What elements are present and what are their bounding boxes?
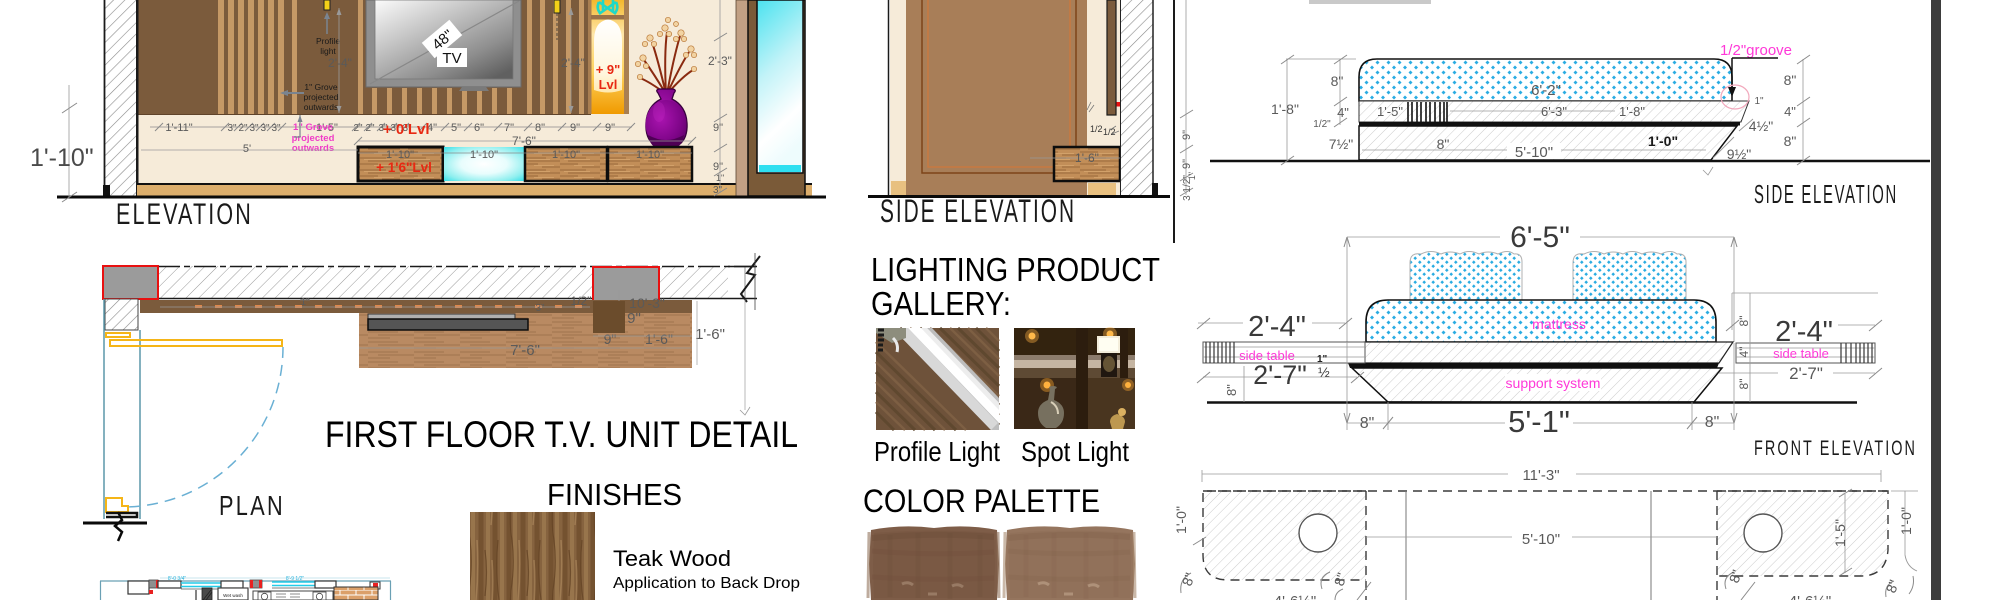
svg-text:6'-2": 6'-2" xyxy=(1531,82,1561,99)
svg-text:7½": 7½" xyxy=(1329,136,1353,152)
svg-text:Teak Wood: Teak Wood xyxy=(613,546,731,571)
svg-text:9": 9" xyxy=(713,161,723,173)
svg-text:9½": 9½" xyxy=(1727,146,1751,162)
svg-text:GALLERY:: GALLERY: xyxy=(871,285,1011,322)
svg-text:1": 1" xyxy=(716,173,724,183)
svg-text:4": 4" xyxy=(1784,104,1796,119)
svg-text:2": 2" xyxy=(365,123,375,134)
svg-text:2'-4": 2'-4" xyxy=(561,56,585,70)
svg-text:1/2: 1/2 xyxy=(1103,127,1116,137)
svg-text:3 1/2": 3 1/2" xyxy=(1182,175,1193,201)
svg-text:4": 4" xyxy=(1737,347,1751,358)
svg-text:SIDE ELEVATION: SIDE ELEVATION xyxy=(880,193,1076,229)
svg-text:2'-4": 2'-4" xyxy=(328,56,352,70)
svg-text:TV: TV xyxy=(442,50,461,67)
svg-text:side table: side table xyxy=(1773,346,1829,361)
svg-text:PLAN: PLAN xyxy=(219,490,285,521)
svg-text:1" Grove: 1" Grove xyxy=(293,122,333,133)
svg-text:1/2": 1/2" xyxy=(571,294,592,308)
svg-text:1'-5": 1'-5" xyxy=(1832,519,1848,547)
svg-text:3": 3" xyxy=(260,123,270,134)
svg-text:7": 7" xyxy=(504,122,514,134)
svg-text:10'-3": 10'-3" xyxy=(629,295,665,311)
svg-text:+ 1'6"Lvl: + 1'6"Lvl xyxy=(376,160,432,175)
svg-text:projected: projected xyxy=(304,92,339,102)
svg-text:8": 8" xyxy=(1224,384,1239,396)
svg-text:Profile Light: Profile Light xyxy=(874,436,1000,467)
svg-text:5'-10": 5'-10" xyxy=(1522,531,1560,548)
svg-text:LIGHTING PRODUCT: LIGHTING PRODUCT xyxy=(871,251,1160,288)
svg-text:1'-8": 1'-8" xyxy=(1619,104,1645,119)
svg-text:1/2": 1/2" xyxy=(1313,119,1331,130)
svg-text:1/2"groove: 1/2"groove xyxy=(1720,42,1792,59)
svg-text:6'-3": 6'-3" xyxy=(1541,104,1567,119)
svg-text:FIRST FLOOR T.V. UNIT DETAIL: FIRST FLOOR T.V. UNIT DETAIL xyxy=(325,414,798,455)
svg-text:2": 2" xyxy=(353,123,363,134)
svg-text:2": 2" xyxy=(238,123,248,134)
svg-text:ELEVATION: ELEVATION xyxy=(116,198,253,231)
svg-text:9": 9" xyxy=(605,122,615,134)
svg-text:9": 9" xyxy=(1181,159,1193,169)
svg-text:4": 4" xyxy=(1337,105,1349,120)
svg-text:1'-5": 1'-5" xyxy=(1377,104,1403,119)
svg-text:1'-0": 1'-0" xyxy=(1898,507,1914,535)
svg-text:2'-4": 2'-4" xyxy=(1775,316,1833,348)
svg-text:1'-11": 1'-11" xyxy=(165,122,192,134)
svg-text:1'-0": 1'-0" xyxy=(1173,506,1189,534)
svg-text:1/2: 1/2 xyxy=(1090,124,1103,134)
svg-text:5": 5" xyxy=(451,122,461,134)
svg-text:9": 9" xyxy=(570,122,580,134)
svg-text:+ 9": + 9" xyxy=(596,62,621,77)
svg-text:1'-10": 1'-10" xyxy=(552,149,580,161)
svg-text:5'-1": 5'-1" xyxy=(1508,404,1570,439)
svg-text:8'-9 1/2": 8'-9 1/2" xyxy=(286,576,305,582)
svg-text:8": 8" xyxy=(1737,379,1751,390)
svg-text:3": 3" xyxy=(249,123,259,134)
svg-text:9": 9" xyxy=(604,331,617,347)
svg-text:8": 8" xyxy=(1437,136,1450,152)
svg-text:SIDE ELEVATION: SIDE ELEVATION xyxy=(1754,179,1898,209)
svg-text:1'-10": 1'-10" xyxy=(30,144,94,172)
svg-text:Spot Light: Spot Light xyxy=(1021,436,1129,467)
svg-text:+ 0'Lvl: + 0'Lvl xyxy=(383,121,430,138)
svg-text:1'-10": 1'-10" xyxy=(470,149,498,161)
svg-text:1": 1" xyxy=(1317,354,1328,365)
svg-text:5'-10": 5'-10" xyxy=(1515,144,1553,161)
svg-text:9": 9" xyxy=(713,122,723,134)
svg-text:1": 1" xyxy=(300,297,310,308)
svg-text:6'-5": 6'-5" xyxy=(1510,221,1570,254)
svg-text:2'-3": 2'-3" xyxy=(708,54,732,68)
svg-text:support system: support system xyxy=(1506,375,1601,391)
svg-text:mattress: mattress xyxy=(1532,316,1586,332)
svg-text:outwards: outwards xyxy=(292,143,334,154)
svg-text:8": 8" xyxy=(535,122,545,134)
svg-text:2'-7": 2'-7" xyxy=(1253,360,1307,390)
svg-text:8": 8" xyxy=(1360,415,1375,432)
svg-text:2'-4": 2'-4" xyxy=(1248,311,1306,343)
svg-text:1'-6": 1'-6" xyxy=(1075,151,1099,165)
svg-text:3": 3" xyxy=(535,303,545,314)
svg-text:½: ½ xyxy=(1318,364,1330,380)
svg-text:7'-6": 7'-6" xyxy=(510,342,540,359)
svg-text:7'-6": 7'-6" xyxy=(512,134,536,148)
svg-text:Wet wash: Wet wash xyxy=(223,593,243,598)
svg-text:Profile: Profile xyxy=(316,36,340,46)
svg-text:light: light xyxy=(320,46,336,56)
svg-text:1" Grove: 1" Grove xyxy=(304,82,338,92)
svg-text:6": 6" xyxy=(474,122,484,134)
svg-text:4'-6½": 4'-6½" xyxy=(1274,593,1316,600)
svg-text:4'-6½": 4'-6½" xyxy=(1789,593,1831,600)
svg-text:8": 8" xyxy=(1784,133,1797,149)
svg-text:FINISHES: FINISHES xyxy=(547,477,682,512)
svg-text:8": 8" xyxy=(1331,73,1344,89)
svg-text:3": 3" xyxy=(713,185,723,196)
svg-text:8": 8" xyxy=(1737,316,1751,327)
svg-text:8": 8" xyxy=(1705,414,1720,431)
svg-text:COLOR PALETTE: COLOR PALETTE xyxy=(863,483,1100,519)
svg-text:Lvl: Lvl xyxy=(599,77,618,92)
svg-text:3": 3" xyxy=(271,123,281,134)
svg-text:1'-0": 1'-0" xyxy=(1648,133,1678,149)
svg-text:3": 3" xyxy=(227,123,237,134)
svg-text:Application to Back Drop: Application to Back Drop xyxy=(613,575,800,592)
svg-text:1'-6": 1'-6" xyxy=(695,326,725,343)
svg-text:8": 8" xyxy=(1784,72,1797,88)
svg-text:1": 1" xyxy=(1754,96,1764,107)
svg-text:9": 9" xyxy=(627,310,641,327)
svg-text:1'-8": 1'-8" xyxy=(1271,101,1299,117)
svg-text:4½": 4½" xyxy=(1749,118,1773,134)
svg-text:11'-3": 11'-3" xyxy=(1522,467,1559,484)
svg-text:5': 5' xyxy=(243,143,251,155)
svg-text:2'-7": 2'-7" xyxy=(1789,364,1823,383)
svg-text:1'-10": 1'-10" xyxy=(636,149,664,161)
svg-text:FRONT ELEVATION: FRONT ELEVATION xyxy=(1754,437,1917,460)
svg-text:outwards: outwards xyxy=(304,102,339,112)
svg-text:9": 9" xyxy=(1181,130,1193,140)
svg-text:1'-6": 1'-6" xyxy=(645,331,673,347)
